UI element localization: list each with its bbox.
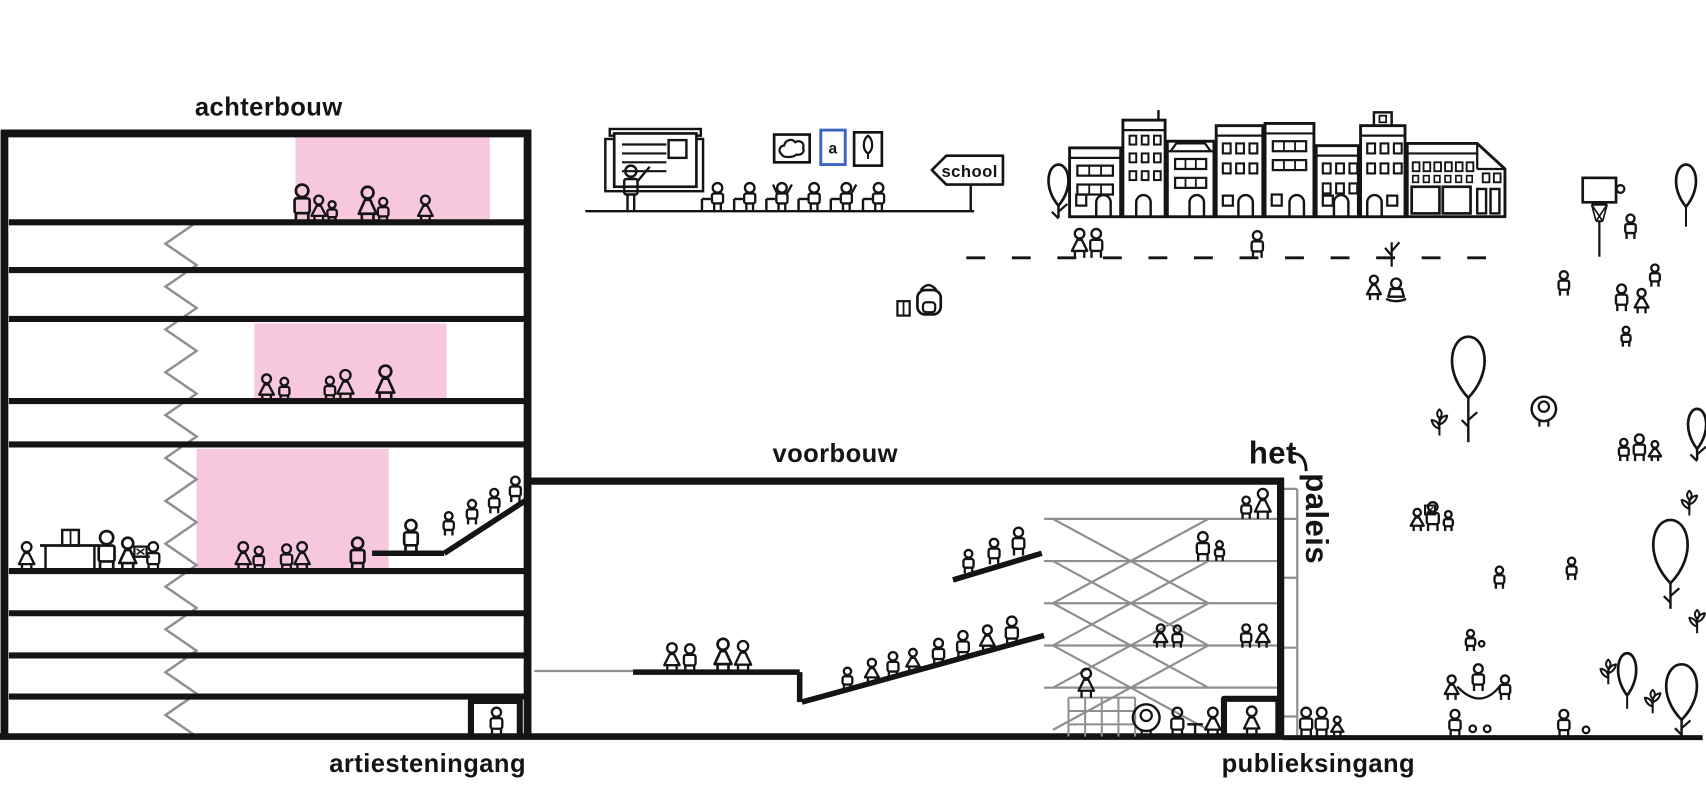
diagram-stage: achterbouw voorbouw het paleis artiesten… xyxy=(0,0,1706,800)
label-het: het xyxy=(1249,435,1297,470)
jump-rope xyxy=(1457,685,1500,698)
ball-icon xyxy=(1469,725,1476,732)
person-figure xyxy=(1558,710,1569,737)
label-artiesteningang: artiesteningang xyxy=(329,750,526,778)
hood-kid-figure xyxy=(1532,397,1556,427)
building-achterbouw xyxy=(1,130,531,739)
diagram-svg: achterbouw voorbouw het paleis artiesten… xyxy=(0,0,1706,800)
person-figure xyxy=(664,643,679,672)
person-figure xyxy=(1300,708,1312,737)
person-figure xyxy=(1205,708,1220,737)
flower-icon xyxy=(1689,610,1705,633)
person-figure xyxy=(1500,675,1511,699)
person-figure xyxy=(989,539,1000,565)
person-figure xyxy=(1154,624,1167,647)
school-sign-text: school xyxy=(941,162,997,181)
person-figure xyxy=(1619,439,1629,461)
person-figure xyxy=(1634,434,1645,461)
person-figure xyxy=(1316,708,1328,737)
presentation-board xyxy=(605,129,703,191)
pink-room xyxy=(197,449,389,570)
person-figure xyxy=(1616,284,1627,311)
person-figure xyxy=(906,649,919,672)
person-figure xyxy=(1473,664,1484,691)
person-figure xyxy=(444,512,454,535)
person-figure xyxy=(404,520,418,553)
person-figure xyxy=(1013,528,1025,556)
person-figure xyxy=(684,644,696,672)
person-figure xyxy=(735,641,751,672)
ground-lines xyxy=(0,737,1703,738)
house xyxy=(1407,143,1505,216)
person-figure xyxy=(1006,617,1018,646)
flower-icon xyxy=(1645,690,1661,713)
person-figure xyxy=(1072,229,1087,258)
sitting-kid-figure xyxy=(1386,278,1406,301)
flower-icon xyxy=(1682,491,1698,516)
person-figure xyxy=(1255,489,1271,519)
basketball-hoop xyxy=(1583,178,1625,257)
balloon-tree-icon xyxy=(1653,520,1687,609)
ball-icon xyxy=(1583,727,1590,734)
person-figure xyxy=(1241,497,1251,519)
person-figure xyxy=(715,639,732,672)
person-figure xyxy=(19,542,34,571)
pink-room xyxy=(295,137,489,221)
person-figure xyxy=(888,652,899,678)
person-figure xyxy=(1649,441,1661,461)
person-figure xyxy=(933,639,944,666)
flower-icon xyxy=(1600,660,1616,685)
flower-icon xyxy=(1432,409,1448,435)
person-figure xyxy=(1466,630,1475,651)
backpack-icon xyxy=(897,285,940,316)
ball-icon xyxy=(1484,725,1491,732)
letter-frame-text: a xyxy=(828,140,837,157)
person-figure xyxy=(865,659,879,683)
balloon-tree-icon xyxy=(1452,337,1485,443)
person-figure xyxy=(1241,624,1251,647)
person-figure xyxy=(1331,717,1343,737)
label-paleis: paleis xyxy=(1299,473,1334,564)
house xyxy=(1361,112,1405,216)
person-figure xyxy=(1445,675,1459,699)
person-figure xyxy=(467,500,478,524)
balloon-tree-icon xyxy=(1688,409,1706,461)
label-publieksingang: publieksingang xyxy=(1222,750,1415,778)
person-figure xyxy=(1252,231,1263,258)
person-figure xyxy=(980,625,995,652)
balloon-icon xyxy=(1676,165,1696,227)
person-figure xyxy=(1197,532,1209,561)
house xyxy=(1216,126,1263,217)
label-voorbouw: voorbouw xyxy=(772,440,898,468)
house xyxy=(1265,123,1314,216)
scene-drawing xyxy=(0,110,1706,739)
house xyxy=(1070,148,1121,217)
person-figure xyxy=(1411,509,1424,531)
person-figure xyxy=(1650,264,1660,286)
person-figure xyxy=(510,477,521,503)
person-figure xyxy=(1079,669,1094,698)
person-figure xyxy=(1622,327,1631,347)
person-figure xyxy=(1559,271,1570,295)
person-figure xyxy=(1215,541,1224,561)
balloon-icon xyxy=(1618,653,1636,709)
house xyxy=(1123,110,1165,217)
person-figure xyxy=(843,668,853,690)
hood-kid-figure xyxy=(1133,704,1160,736)
balloon-tree-icon xyxy=(1666,664,1697,736)
person-figure xyxy=(489,489,500,513)
person-figure xyxy=(1444,511,1453,531)
person-figure xyxy=(1367,276,1381,300)
house xyxy=(1167,141,1214,217)
person-figure xyxy=(1449,710,1460,737)
pupils-at-desks xyxy=(702,183,884,211)
person-figure xyxy=(1567,558,1577,580)
person-figure xyxy=(1635,289,1649,313)
table-icon xyxy=(40,530,100,571)
twig-icon xyxy=(1385,242,1399,266)
building-voorbouw xyxy=(531,478,1297,739)
person-figure xyxy=(1625,215,1636,239)
ball-icon xyxy=(1479,641,1485,647)
person-figure xyxy=(963,550,973,573)
label-achterbouw: achterbouw xyxy=(195,94,343,122)
person-figure xyxy=(1256,624,1269,647)
person-figure xyxy=(957,631,969,659)
zigzag-shaft xyxy=(165,222,196,736)
person-figure xyxy=(1495,567,1505,589)
house xyxy=(1316,146,1358,217)
person-figure xyxy=(99,531,115,571)
person-figure xyxy=(1090,229,1102,258)
balloon-tree-icon xyxy=(1049,165,1069,219)
